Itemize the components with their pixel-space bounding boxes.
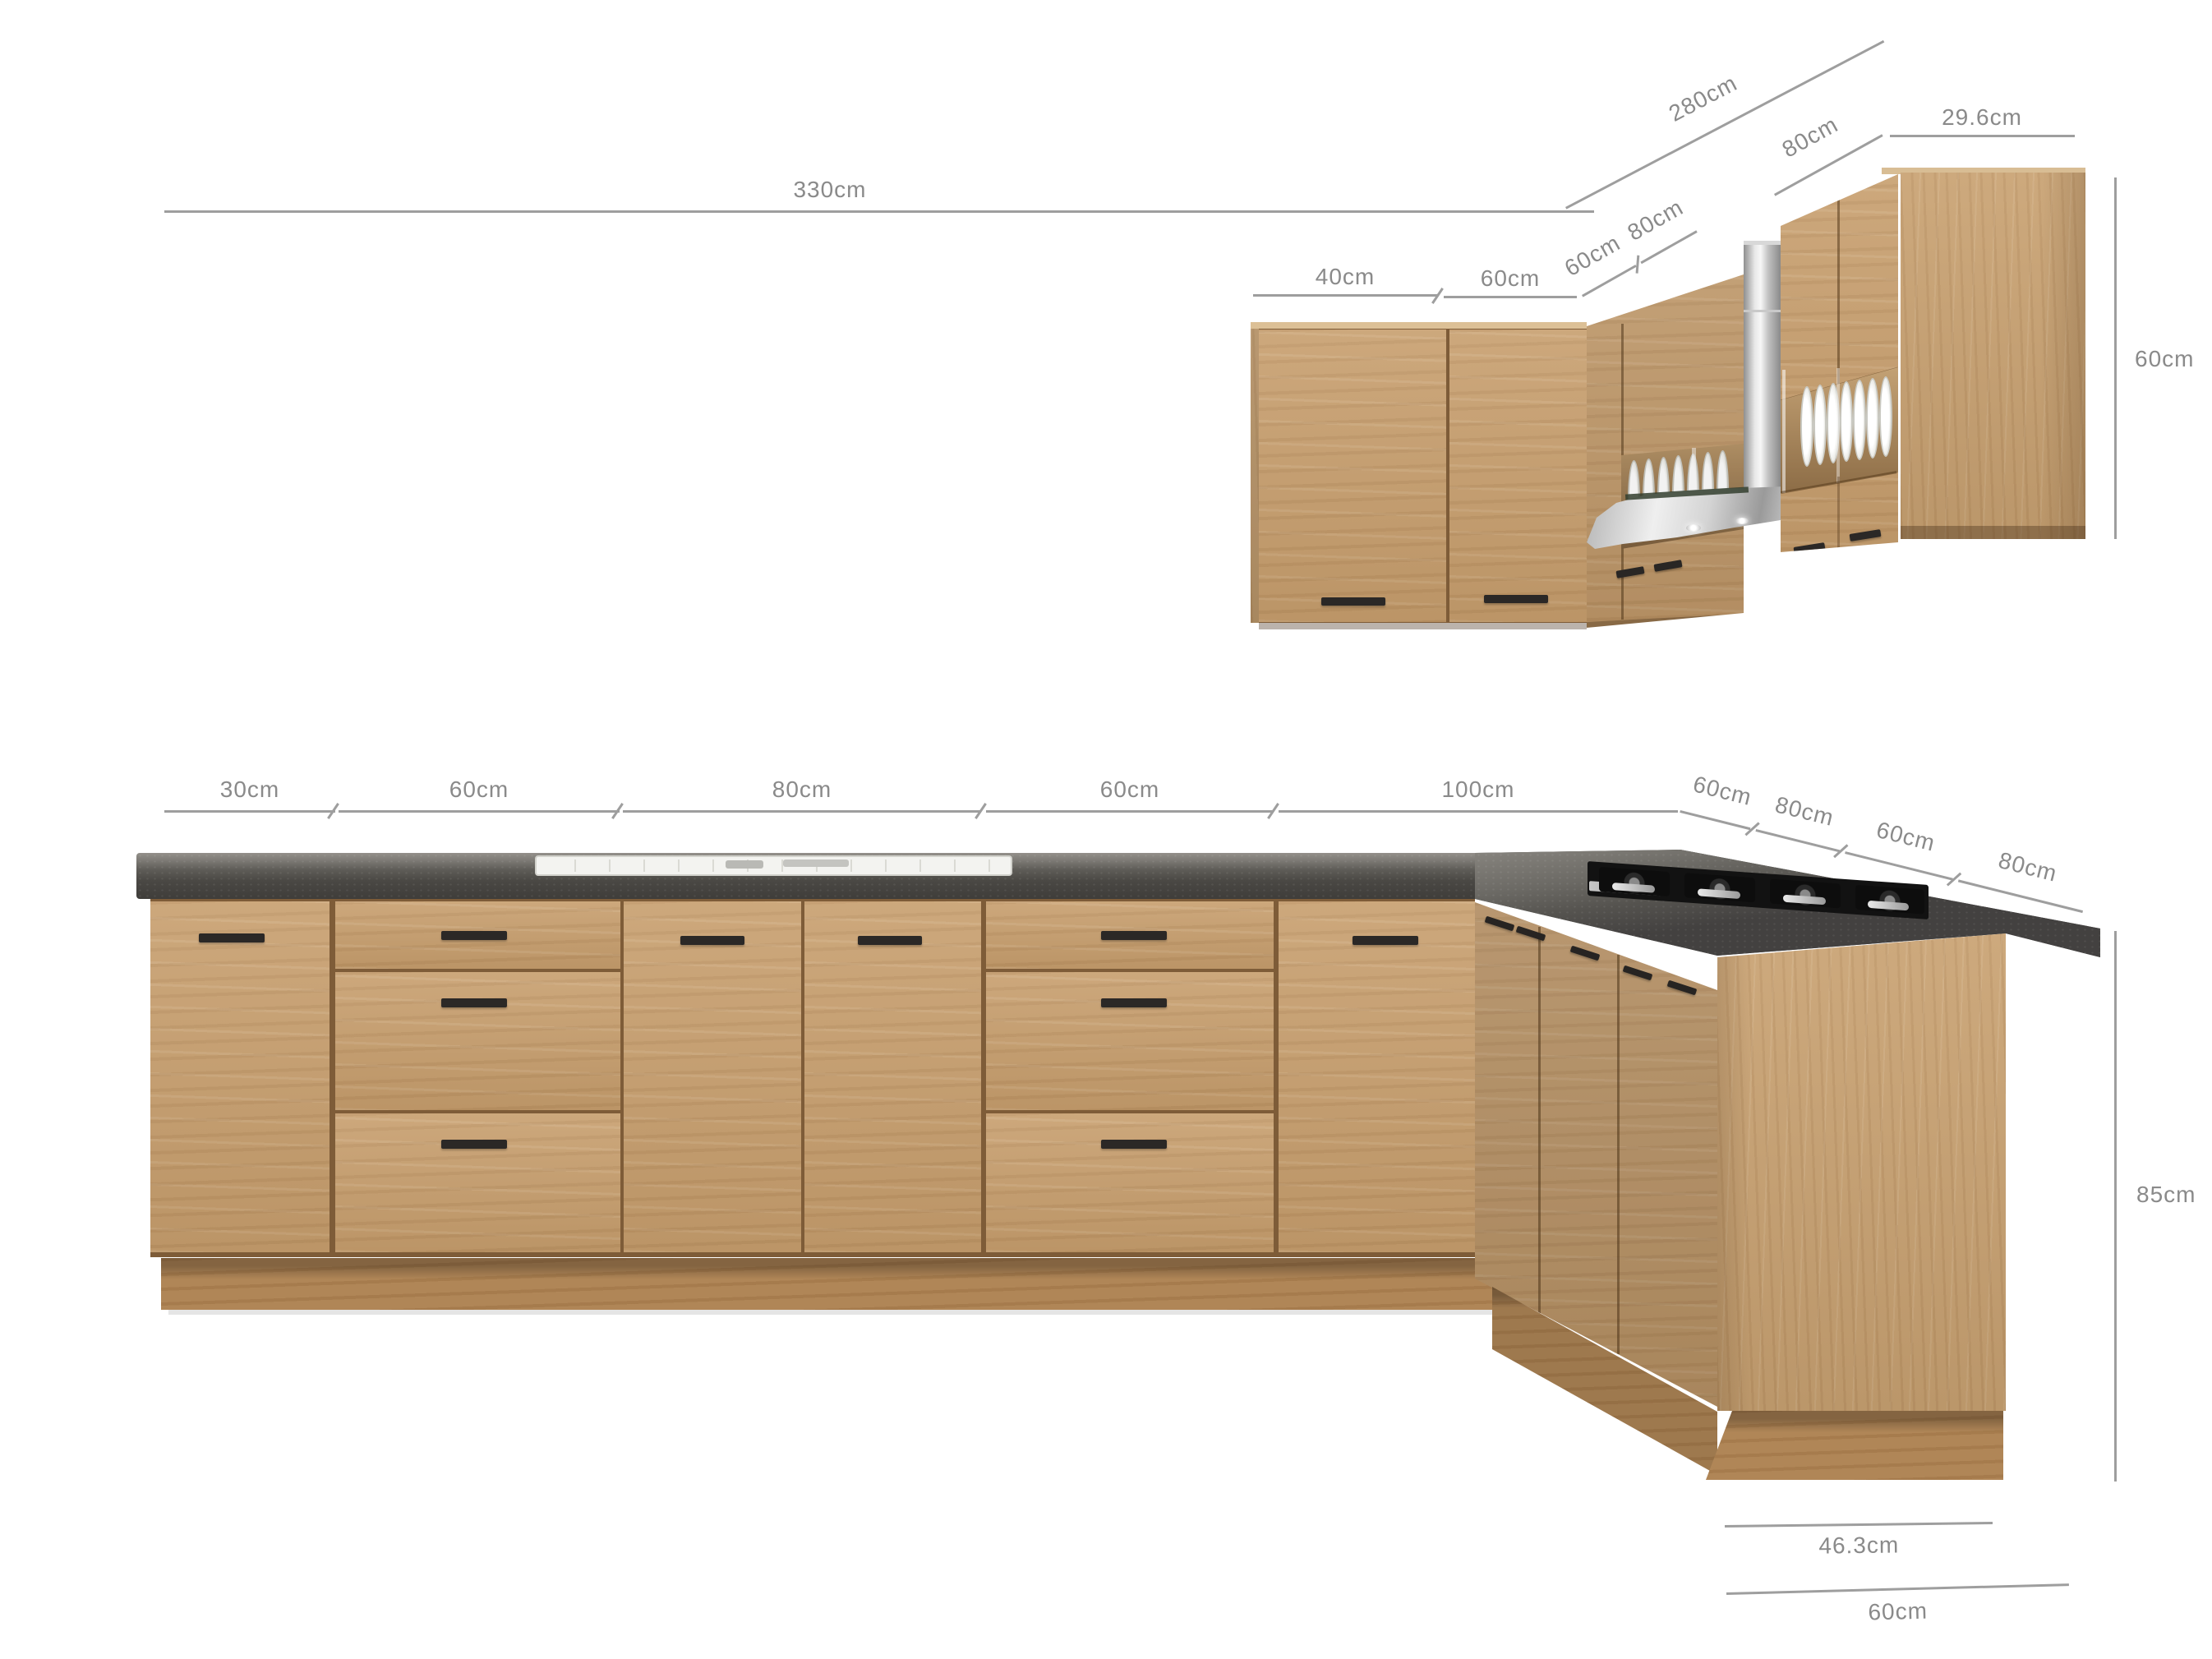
panel-shade <box>1717 933 1750 1411</box>
dim-wall-height-label: 60cm <box>2135 345 2212 373</box>
wall-corner-bottom-shadow <box>1587 614 1744 634</box>
dim-base-60b-line <box>986 810 1274 813</box>
dim-wall-total-line <box>164 210 1594 213</box>
return-door-handle <box>1485 916 1515 932</box>
glass-cabinet-door-seam <box>1837 477 1840 552</box>
base-drawer-handle <box>441 931 507 940</box>
return-door-seam <box>1617 955 1620 1354</box>
base-fronts <box>150 899 1475 1257</box>
wall-door-40-handle <box>1321 597 1385 606</box>
hood-light <box>1735 518 1749 524</box>
plate-rack-right <box>1800 376 1896 468</box>
glass-door-edge <box>1782 370 1786 493</box>
return-door-handle <box>1667 980 1698 996</box>
burner <box>1599 867 1670 896</box>
base-door-100 <box>1279 901 1475 1252</box>
glass-cabinet-drawer-handle <box>1794 542 1826 555</box>
plinth-shadow <box>168 1310 1495 1315</box>
dim-base-60a-line <box>339 810 620 813</box>
wall-glass-cabinet <box>1781 173 1898 565</box>
dim-base-80-line <box>623 810 981 813</box>
wall-run <box>1259 329 1587 623</box>
sink-drainer <box>535 855 1012 876</box>
dim-wall-door40-line <box>1253 294 1437 297</box>
wall-run-bottom-shadow <box>1259 623 1587 629</box>
glass-door-edge <box>1836 368 1840 483</box>
dim-base-end-b-label: 60cm <box>1832 1596 1964 1627</box>
range-hood-chimney <box>1744 241 1781 505</box>
base-door-30-handle <box>199 933 265 942</box>
base-drawer <box>986 1113 1274 1252</box>
end-panel-plinth <box>1706 1411 2003 1480</box>
dim-wall-end-depth-label: 29.6cm <box>1916 104 2048 131</box>
base-drawer-handle <box>441 1140 507 1149</box>
dim-base-height-label: 85cm <box>2136 1181 2210 1209</box>
dim-wall-total-label: 330cm <box>764 176 896 204</box>
wall-door-60-handle <box>1484 595 1548 603</box>
chimney-seam <box>1744 310 1781 312</box>
base-end-panel <box>1717 933 2006 1411</box>
dim-wall-end-depth-line <box>1890 135 2075 137</box>
burner-glint <box>1783 895 1826 906</box>
dim-base-end-a-label: 46.3cm <box>1793 1531 1924 1560</box>
return-door-handle <box>1516 926 1546 942</box>
base-drawer-handle <box>1101 931 1167 940</box>
panel-bottom-shadow <box>1901 526 2085 539</box>
drainer-rails <box>541 859 1006 872</box>
return-door-handle <box>1623 965 1653 981</box>
base-door-80-handle <box>680 936 744 945</box>
return-door-seam <box>1538 927 1541 1313</box>
burner <box>1855 885 1924 915</box>
dim-wall-door40-label: 40cm <box>1279 263 1411 291</box>
base-door-30 <box>150 901 329 1252</box>
sink-fitting <box>783 859 849 867</box>
dim-wall-height-line <box>2114 177 2117 539</box>
dim-base-30-label: 30cm <box>184 776 316 804</box>
dim-wall-door60-line <box>1444 296 1577 298</box>
base-drawer-handle <box>1101 1140 1167 1149</box>
chimney-cap <box>1744 241 1781 245</box>
sink-fitting <box>726 860 763 869</box>
base-drawer-handle <box>1101 998 1167 1007</box>
dim-base-100-label: 100cm <box>1412 776 1544 804</box>
dim-base-100-line <box>1279 810 1678 813</box>
kitchen-dimension-diagram: 330cm 280cm 80cm 29.6cm 40cm 60cm 60cm 8… <box>0 0 2212 1659</box>
wall-door-60 <box>1449 329 1587 622</box>
wall-cabinets <box>0 0 2212 657</box>
dim-base-60b-label: 60cm <box>1064 776 1196 804</box>
wall-corner-drawer-handle <box>1653 560 1682 572</box>
panel-shade <box>2040 173 2085 539</box>
hood-light <box>1686 524 1701 532</box>
burner-glint <box>1868 901 1909 910</box>
glass-cabinet-drawer-handle <box>1850 529 1882 541</box>
base-drawer <box>335 972 620 1110</box>
wall-end-panel <box>1901 173 2085 539</box>
dim-base-80-label: 80cm <box>736 776 868 804</box>
wall-run-side-panel <box>1251 329 1259 623</box>
dim-base-60a-label: 60cm <box>413 776 545 804</box>
base-drawer <box>335 1113 620 1252</box>
base-drawer <box>986 972 1274 1110</box>
glass-cabinet-door-seam <box>1837 176 1840 388</box>
base-door-80-right <box>804 901 981 1252</box>
base-door-80-left <box>624 901 801 1252</box>
dim-base-30-line <box>164 810 335 813</box>
burner-glint <box>1612 882 1655 893</box>
base-drawer-handle <box>441 998 507 1007</box>
return-door-handle <box>1570 946 1601 961</box>
base-door-80-handle <box>858 936 922 945</box>
dim-base-height-line <box>2114 931 2117 1482</box>
wall-door-40 <box>1259 329 1446 622</box>
base-plinth <box>161 1258 1505 1310</box>
burner <box>1684 873 1755 902</box>
burner <box>1770 879 1841 909</box>
base-door-100-handle <box>1353 936 1418 945</box>
wall-corner-drawer-handle <box>1615 566 1644 578</box>
wall-corner-cabinet <box>1587 274 1744 629</box>
burner-glint <box>1698 888 1740 899</box>
